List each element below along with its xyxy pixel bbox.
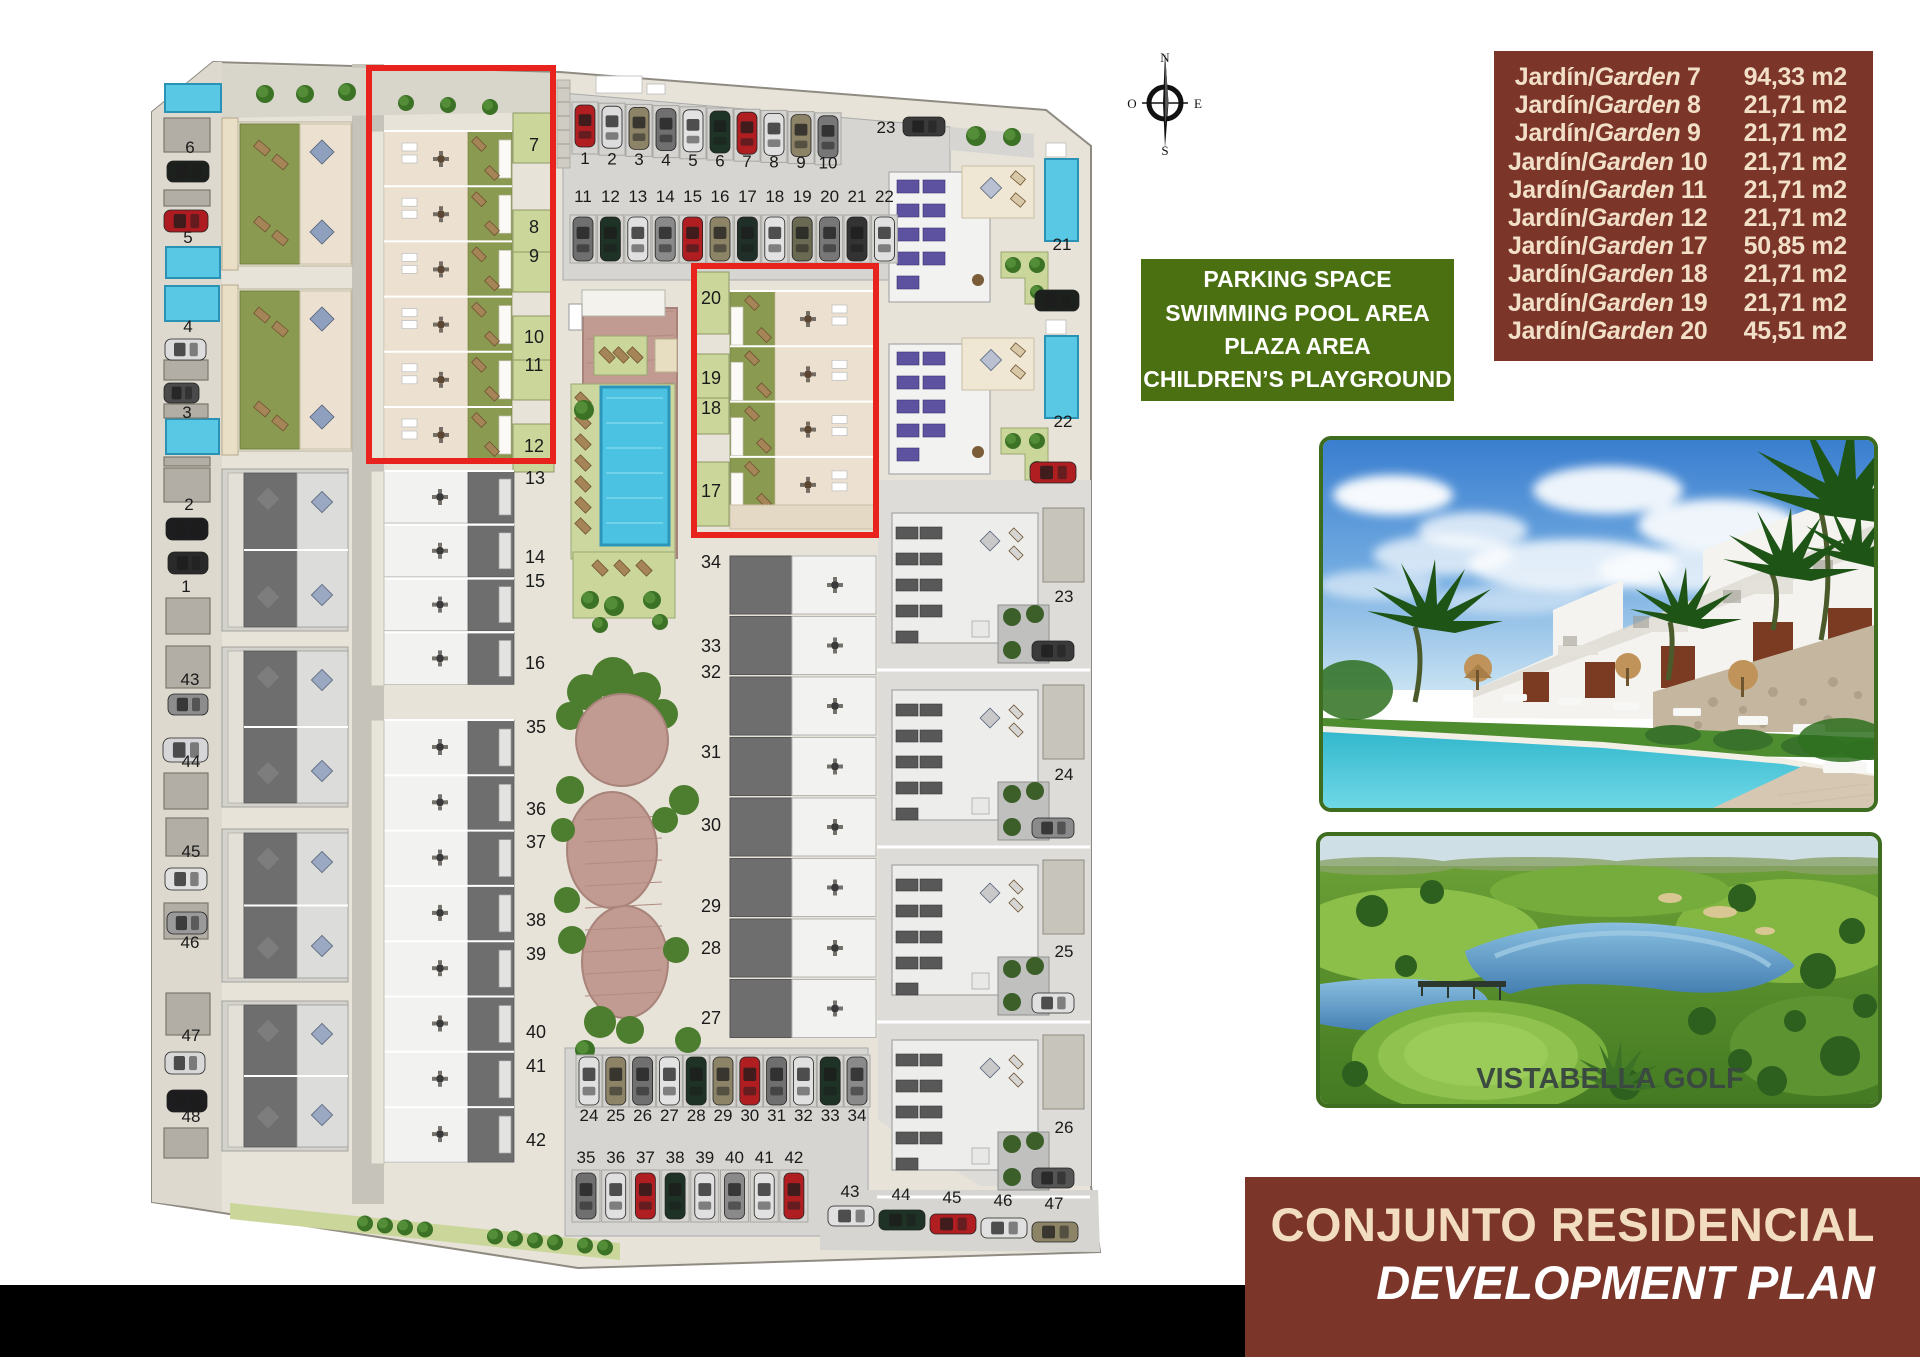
svg-text:47: 47 <box>182 1026 201 1045</box>
svg-text:25: 25 <box>606 1106 625 1125</box>
svg-text:18: 18 <box>701 398 721 418</box>
svg-text:37: 37 <box>636 1148 655 1167</box>
svg-text:8: 8 <box>529 217 539 237</box>
svg-text:17: 17 <box>738 187 757 206</box>
svg-text:26: 26 <box>1055 1118 1074 1137</box>
svg-text:5: 5 <box>688 151 697 170</box>
svg-text:24: 24 <box>1055 765 1074 784</box>
svg-text:7: 7 <box>742 152 751 171</box>
svg-text:19: 19 <box>793 187 812 206</box>
svg-text:34: 34 <box>848 1106 867 1125</box>
svg-text:48: 48 <box>182 1107 201 1126</box>
svg-text:22: 22 <box>875 187 894 206</box>
svg-text:21: 21 <box>1053 235 1072 254</box>
svg-text:S: S <box>1161 143 1168 158</box>
svg-text:12: 12 <box>601 187 620 206</box>
svg-text:16: 16 <box>711 187 730 206</box>
svg-text:38: 38 <box>666 1148 685 1167</box>
svg-text:7: 7 <box>529 135 539 155</box>
svg-text:10: 10 <box>819 154 838 173</box>
svg-text:33: 33 <box>701 636 721 656</box>
svg-text:36: 36 <box>606 1148 625 1167</box>
svg-text:28: 28 <box>687 1106 706 1125</box>
svg-text:36: 36 <box>526 799 546 819</box>
svg-text:10: 10 <box>524 327 544 347</box>
svg-text:45: 45 <box>182 842 201 861</box>
svg-text:11: 11 <box>574 187 592 206</box>
svg-text:3: 3 <box>634 150 643 169</box>
svg-text:1: 1 <box>580 149 589 168</box>
svg-text:27: 27 <box>701 1008 721 1028</box>
svg-text:35: 35 <box>577 1148 596 1167</box>
svg-text:47: 47 <box>1045 1194 1064 1213</box>
svg-text:E: E <box>1194 96 1202 111</box>
svg-text:43: 43 <box>841 1182 860 1201</box>
svg-text:4: 4 <box>183 317 192 336</box>
svg-text:13: 13 <box>628 187 647 206</box>
svg-text:6: 6 <box>715 152 724 171</box>
svg-text:43: 43 <box>181 670 200 689</box>
svg-text:21: 21 <box>848 187 867 206</box>
svg-text:34: 34 <box>701 552 721 572</box>
svg-text:9: 9 <box>796 153 805 172</box>
svg-text:39: 39 <box>695 1148 714 1167</box>
svg-text:20: 20 <box>820 187 839 206</box>
svg-text:15: 15 <box>525 571 545 591</box>
svg-text:2: 2 <box>607 150 616 169</box>
svg-text:1: 1 <box>181 577 190 596</box>
svg-text:11: 11 <box>525 355 544 375</box>
svg-text:3: 3 <box>182 403 191 422</box>
svg-text:26: 26 <box>633 1106 652 1125</box>
svg-text:38: 38 <box>526 910 546 930</box>
svg-text:N: N <box>1160 50 1170 65</box>
svg-text:46: 46 <box>181 933 200 952</box>
svg-text:31: 31 <box>701 742 721 762</box>
svg-text:32: 32 <box>794 1106 813 1125</box>
svg-text:8: 8 <box>769 153 778 172</box>
svg-text:23: 23 <box>877 118 896 137</box>
svg-text:14: 14 <box>656 187 675 206</box>
svg-text:41: 41 <box>755 1148 774 1167</box>
svg-text:46: 46 <box>994 1191 1013 1210</box>
svg-text:44: 44 <box>892 1185 911 1204</box>
svg-text:42: 42 <box>526 1130 546 1150</box>
svg-text:44: 44 <box>182 752 201 771</box>
svg-text:40: 40 <box>526 1022 546 1042</box>
svg-text:29: 29 <box>701 896 721 916</box>
svg-text:12: 12 <box>524 436 544 456</box>
svg-text:20: 20 <box>701 288 721 308</box>
svg-text:28: 28 <box>701 938 721 958</box>
svg-text:41: 41 <box>526 1056 546 1076</box>
svg-text:O: O <box>1127 96 1136 111</box>
svg-text:VISTABELLA GOLF: VISTABELLA GOLF <box>1476 1063 1743 1095</box>
svg-text:5: 5 <box>183 228 192 247</box>
svg-text:42: 42 <box>784 1148 803 1167</box>
svg-text:14: 14 <box>525 547 545 567</box>
svg-text:30: 30 <box>701 815 721 835</box>
svg-text:9: 9 <box>529 246 539 266</box>
svg-text:15: 15 <box>683 187 702 206</box>
svg-text:13: 13 <box>525 468 545 488</box>
svg-text:16: 16 <box>525 653 545 673</box>
svg-text:6: 6 <box>185 138 194 157</box>
svg-text:32: 32 <box>701 662 721 682</box>
svg-text:37: 37 <box>526 832 546 852</box>
svg-text:40: 40 <box>725 1148 744 1167</box>
svg-text:39: 39 <box>526 944 546 964</box>
svg-text:19: 19 <box>701 368 721 388</box>
svg-text:18: 18 <box>765 187 784 206</box>
svg-text:17: 17 <box>701 481 721 501</box>
svg-text:31: 31 <box>767 1106 786 1125</box>
svg-text:30: 30 <box>740 1106 759 1125</box>
svg-text:22: 22 <box>1054 412 1073 431</box>
svg-text:35: 35 <box>526 717 546 737</box>
svg-text:2: 2 <box>184 495 193 514</box>
svg-text:33: 33 <box>821 1106 840 1125</box>
svg-text:23: 23 <box>1055 587 1074 606</box>
svg-text:27: 27 <box>660 1106 679 1125</box>
svg-text:4: 4 <box>661 151 670 170</box>
svg-text:29: 29 <box>714 1106 733 1125</box>
svg-text:25: 25 <box>1055 942 1074 961</box>
svg-text:45: 45 <box>943 1188 962 1207</box>
svg-text:24: 24 <box>580 1106 599 1125</box>
